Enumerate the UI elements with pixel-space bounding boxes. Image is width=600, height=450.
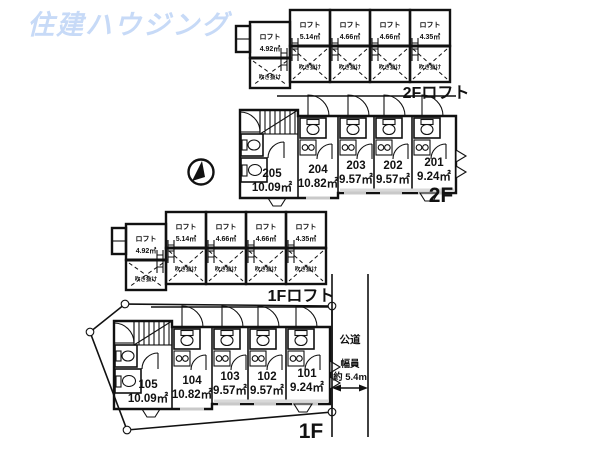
road-width-label: 幅員 [340,358,360,370]
room-area: 9.24㎡ [290,380,324,394]
loft-area: 4.66㎡ [380,32,401,41]
room-number: 105 [138,379,158,391]
compass-north-icon [189,160,214,185]
road: 公道 幅員 約 5.4m [332,274,368,437]
void-label: 吹き抜け [255,265,278,273]
loft-area: 4.66㎡ [256,234,277,243]
floorplan-document: 住建ハウジング [0,0,600,450]
room-area: 9.57㎡ [213,383,247,397]
floor-plan-1f-loft: ロフト 4.92㎡ 吹き抜け ロフト 5.14㎡ 吹き抜け ロフト 4.66㎡ … [112,212,334,305]
loft-label: ロフト [176,223,197,231]
loft-label: ロフト [216,223,237,231]
void-label: 吹き抜け [295,265,318,273]
room-area: 9.57㎡ [250,383,284,397]
road-name: 公道 [340,333,361,346]
floor-plan-1f: 105 10.09㎡ 104 10.82㎡ 103 9.57㎡ 102 9.57… [86,300,340,443]
loft-label: ロフト [260,33,281,41]
void-label: 吹き抜け [379,63,402,71]
boundary-point [86,328,94,336]
road-width-value: 約 5.4m [333,371,367,383]
void-label: 吹き抜け [215,265,238,273]
boundary-point [123,426,131,434]
floor-label-1f-loft: 1Fロフト [268,288,335,305]
loft-label: ロフト [256,223,277,231]
room-area: 9.57㎡ [339,172,373,186]
loft-label: ロフト [300,21,321,29]
void-label: 吹き抜け [259,73,282,81]
room-area: 10.82㎡ [172,387,213,401]
floor-plan-2f: 205 10.09㎡ 204 10.82㎡ 203 9.57㎡ 202 9.57… [240,95,466,207]
void-label: 吹き抜け [135,275,158,283]
void-label: 吹き抜け [339,63,362,71]
loft-area: 5.14㎡ [300,32,321,41]
loft-area: 4.66㎡ [216,234,237,243]
room-number: 104 [182,375,202,387]
room-number: 102 [257,371,276,383]
room-number: 202 [383,160,402,172]
loft-label: ロフト [380,21,401,29]
floor-label-1f: 1F [299,420,324,443]
void-label: 吹き抜け [419,63,442,71]
room-number: 204 [308,164,328,176]
width-arrow-icon [332,385,368,392]
room-area: 10.09㎡ [252,180,293,194]
loft-area: 4.92㎡ [260,44,281,53]
room-area: 10.82㎡ [298,176,339,190]
room-number: 205 [262,168,282,180]
room-number: 101 [297,368,317,380]
loft-label: ロフト [340,21,361,29]
room-number: 103 [220,371,239,383]
loft-label: ロフト [296,223,317,231]
loft-area: 4.35㎡ [420,32,441,41]
void-label: 吹き抜け [299,63,322,71]
loft-area: 4.35㎡ [296,234,317,243]
loft-label: ロフト [420,21,441,29]
room-area: 10.09㎡ [128,391,169,405]
floor-label-2f-loft: 2Fロフト [403,85,470,102]
room-number: 201 [424,157,444,169]
floor-label-2f: 2F [429,184,454,207]
void-label: 吹き抜け [175,265,198,273]
floor-plan-2f-loft: ロフト 4.92㎡ 吹き抜け ロフト 5.14㎡ 吹き抜け ロフト 4.66㎡ … [236,10,469,102]
loft-label: ロフト [136,235,157,243]
floorplan-drawing: ロフト 4.92㎡ 吹き抜け ロフト 5.14㎡ 吹き抜け ロフト 4.66㎡ … [0,0,600,450]
room-area: 9.24㎡ [417,169,451,183]
boundary-point [121,300,129,308]
room-area: 9.57㎡ [376,172,410,186]
room-number: 203 [346,160,365,172]
loft-area: 5.14㎡ [176,234,197,243]
loft-area: 4.92㎡ [136,246,157,255]
loft-area: 4.66㎡ [340,32,361,41]
